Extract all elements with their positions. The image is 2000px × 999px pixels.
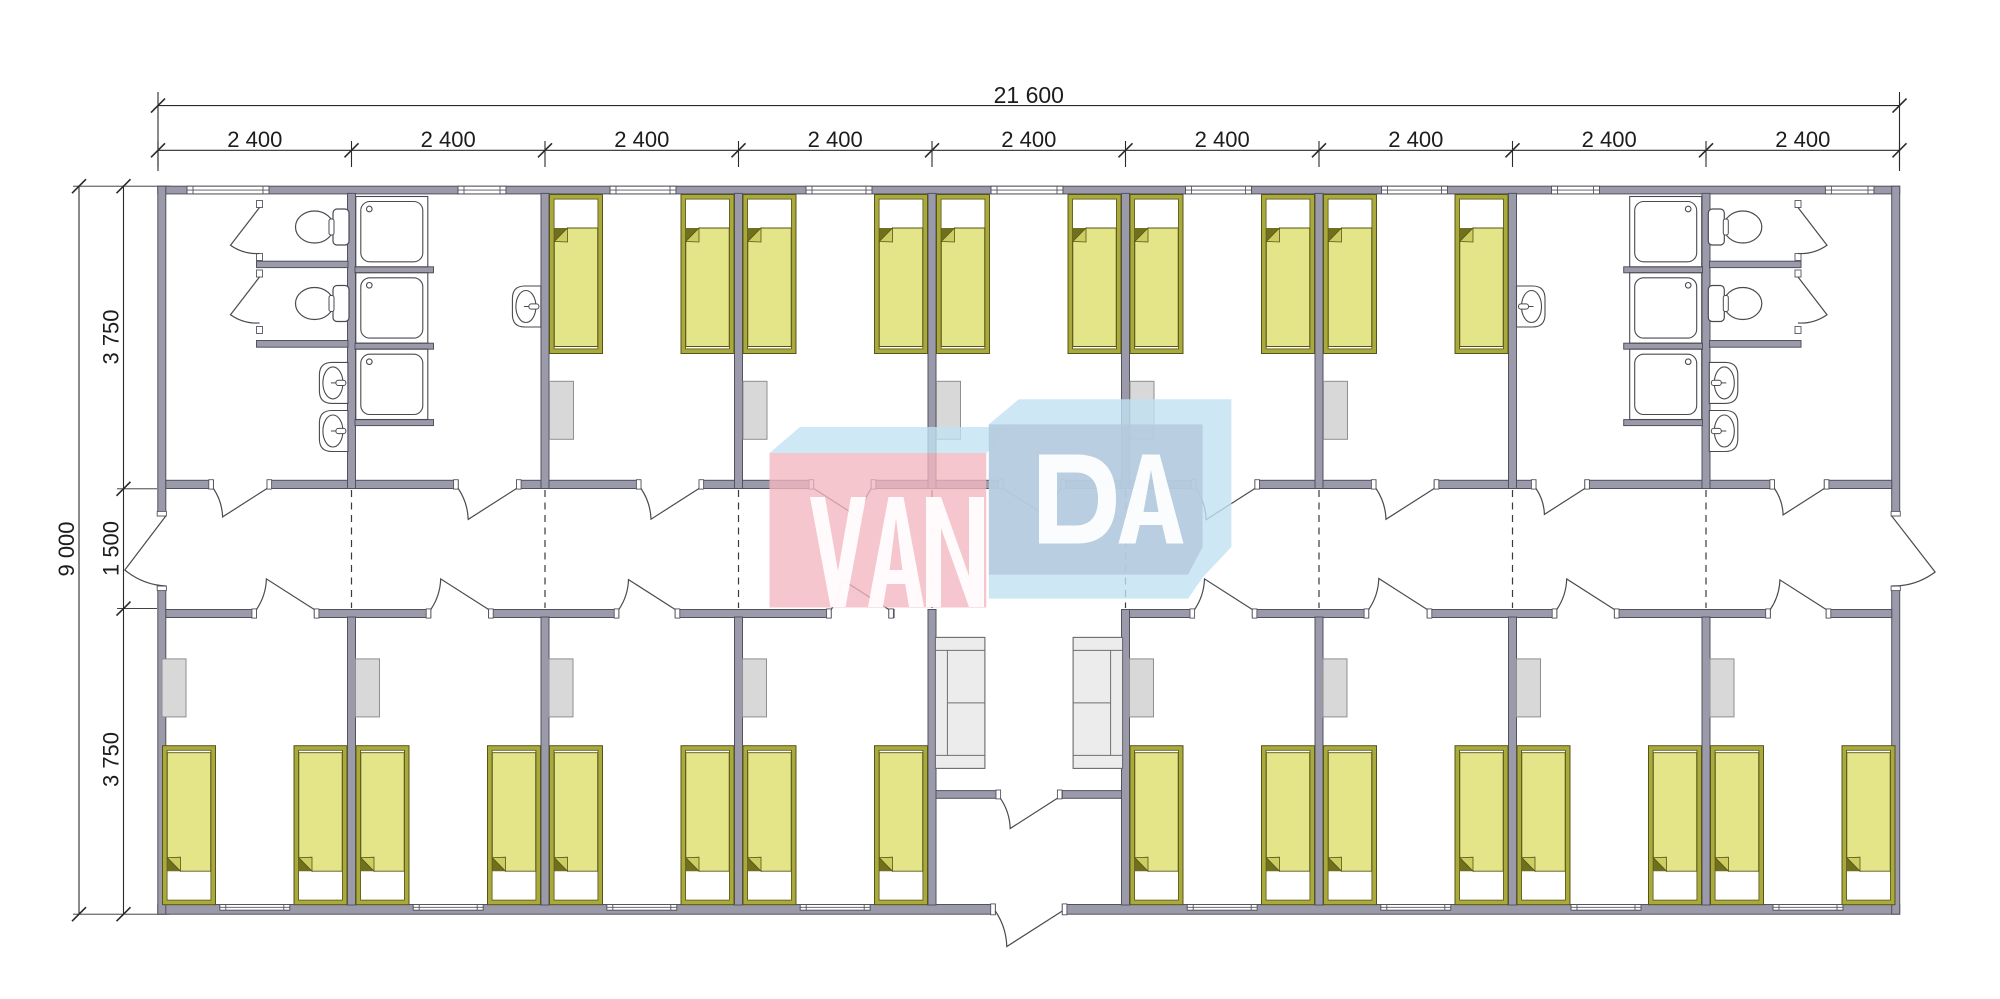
svg-text:3 750: 3 750 xyxy=(99,732,124,787)
svg-text:2 400: 2 400 xyxy=(1195,127,1250,152)
svg-text:2 400: 2 400 xyxy=(808,127,863,152)
svg-text:21 600: 21 600 xyxy=(994,82,1064,108)
svg-text:2 400: 2 400 xyxy=(227,127,282,152)
svg-text:1 500: 1 500 xyxy=(99,521,124,576)
svg-text:2 400: 2 400 xyxy=(1001,127,1056,152)
svg-text:2 400: 2 400 xyxy=(1582,127,1637,152)
svg-text:2 400: 2 400 xyxy=(421,127,476,152)
svg-text:9 000: 9 000 xyxy=(54,521,79,576)
svg-text:2 400: 2 400 xyxy=(614,127,669,152)
svg-text:2 400: 2 400 xyxy=(1775,127,1830,152)
svg-text:3 750: 3 750 xyxy=(99,309,124,364)
svg-text:2 400: 2 400 xyxy=(1388,127,1443,152)
